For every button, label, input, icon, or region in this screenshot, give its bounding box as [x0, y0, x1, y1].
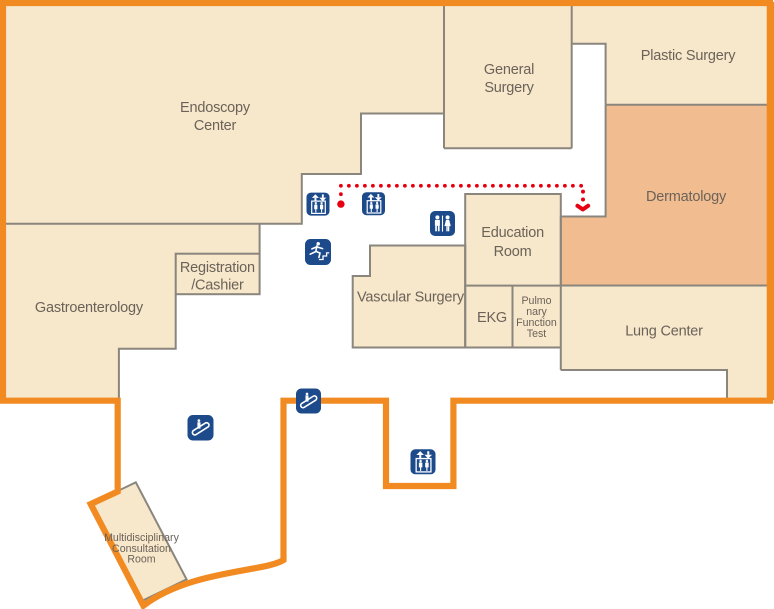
svg-text:Room: Room [494, 244, 532, 260]
svg-text:General: General [484, 62, 534, 78]
svg-text:Test: Test [527, 328, 546, 340]
svg-text:Room: Room [127, 554, 155, 566]
svg-text:/Cashier: /Cashier [191, 278, 244, 294]
svg-text:Surgery: Surgery [484, 80, 534, 96]
svg-text:Vascular Surgery: Vascular Surgery [357, 290, 465, 306]
svg-text:Gastroenterology: Gastroenterology [35, 300, 144, 316]
svg-text:Education: Education [481, 225, 544, 241]
svg-text:Plastic Surgery: Plastic Surgery [641, 48, 736, 64]
svg-text:Lung Center: Lung Center [625, 324, 703, 340]
svg-text:Endoscopy: Endoscopy [180, 100, 251, 116]
svg-text:EKG: EKG [477, 310, 507, 326]
svg-text:Registration: Registration [180, 260, 255, 276]
svg-text:Center: Center [194, 118, 237, 134]
svg-text:Dermatology: Dermatology [646, 189, 727, 205]
